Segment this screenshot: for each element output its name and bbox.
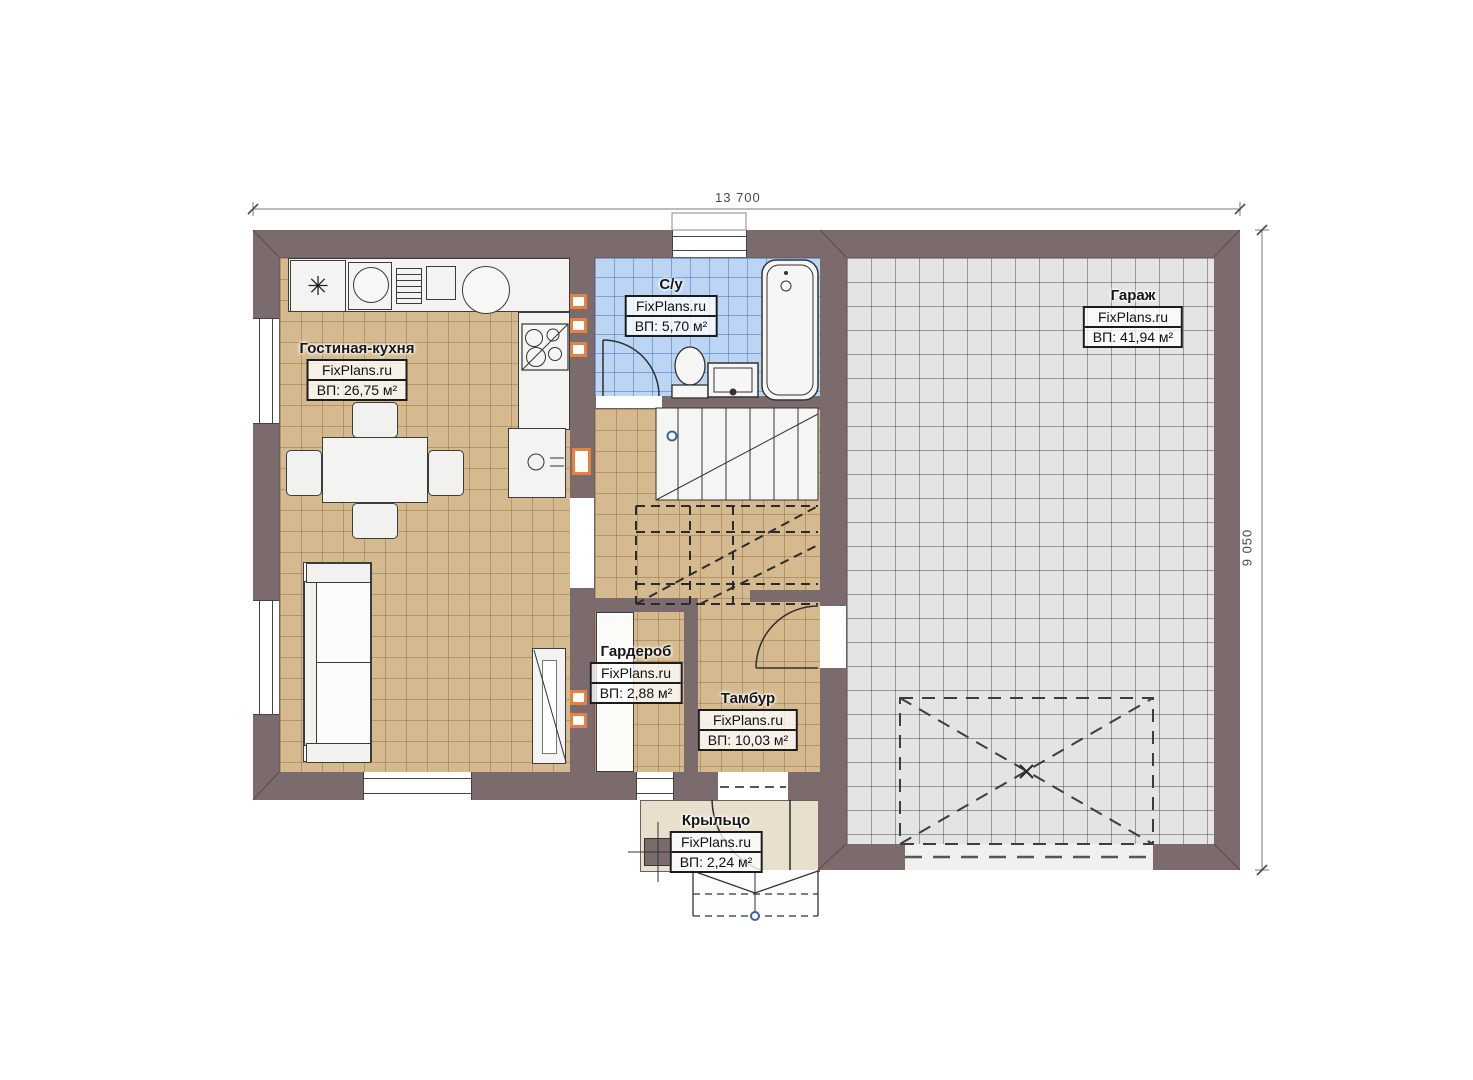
- doorway-bathroom: [596, 396, 662, 408]
- watermark-fixplans: FixPlans.ru: [1085, 308, 1181, 326]
- watermark-fixplans: FixPlans.ru: [672, 833, 761, 851]
- room-name: Гостиная-кухня: [300, 340, 415, 357]
- room-area: ВП: 41,94 м²: [1085, 326, 1181, 346]
- window-wardrobe: [636, 772, 674, 800]
- watermark-fixplans: FixPlans.ru: [627, 297, 716, 315]
- room-area: ВП: 26,75 м²: [309, 379, 405, 399]
- dining-table: [322, 437, 428, 503]
- watermark-fixplans: FixPlans.ru: [592, 664, 681, 682]
- room-label-vestibule: Тамбур FixPlans.ru ВП: 10,03 м²: [698, 690, 798, 751]
- window-living-bottom: [363, 772, 472, 800]
- kitchen-cabinet: [426, 266, 456, 300]
- sofa: [303, 562, 372, 762]
- wall-garage-right: [1214, 257, 1240, 870]
- garage-door-opening: [905, 844, 1153, 870]
- wall-porch-right: [818, 772, 846, 870]
- room-area: ВП: 10,03 м²: [700, 729, 796, 749]
- dimension-width-label: 13 700: [715, 190, 761, 205]
- watermark-fixplans: FixPlans.ru: [700, 711, 796, 729]
- room-name: С/у: [625, 276, 718, 293]
- window-living-left-1: [253, 318, 279, 424]
- entrance-door-opening: [718, 772, 788, 800]
- room-name: Гардероб: [590, 643, 683, 660]
- refrigerator-icon: ✳: [290, 260, 346, 312]
- room-area: ВП: 2,24 м²: [672, 851, 761, 871]
- electrical-panel-icon: [572, 448, 591, 475]
- vanity-unit: [508, 428, 566, 498]
- chair: [352, 402, 398, 438]
- dimension-height-label: 9 050: [1239, 529, 1254, 567]
- room-label-bathroom: С/у FixPlans.ru ВП: 5,70 м²: [625, 276, 718, 337]
- room-label-living: Гостиная-кухня FixPlans.ru ВП: 26,75 м²: [300, 340, 415, 401]
- sofa-armrest: [306, 743, 371, 763]
- vent-box-icon: [570, 690, 587, 705]
- dishwasher-icon: [396, 268, 422, 304]
- room-label-garage: Гараж FixPlans.ru ВП: 41,94 м²: [1083, 287, 1183, 348]
- floor-plan: 13 700 9 050 ✳: [0, 0, 1473, 1080]
- chair: [352, 503, 398, 539]
- vent-box-icon: [570, 342, 587, 357]
- room-name: Крыльцо: [670, 812, 763, 829]
- vent-box-icon: [570, 294, 587, 309]
- vent-box-icon: [570, 713, 587, 728]
- vent-box-icon: [570, 318, 587, 333]
- wall-wardrobe-top: [594, 598, 686, 612]
- room-area: ВП: 2,88 м²: [592, 682, 681, 702]
- wall-garage-left: [820, 257, 846, 844]
- wall-vestibule-stub: [750, 590, 820, 602]
- doorway-living-hall: [570, 498, 594, 588]
- room-name: Тамбур: [698, 690, 798, 707]
- sofa-armrest: [306, 563, 371, 583]
- room-name: Гараж: [1083, 287, 1183, 304]
- room-label-porch: Крыльцо FixPlans.ru ВП: 2,24 м²: [670, 812, 763, 873]
- window-living-left-2: [253, 600, 279, 715]
- porch-post: [644, 838, 672, 866]
- room-label-wardrobe: Гардероб FixPlans.ru ВП: 2,88 м²: [590, 643, 683, 704]
- kitchen-counter-side: [518, 312, 570, 430]
- sofa-cushion: [316, 662, 371, 746]
- room-area: ВП: 5,70 м²: [627, 315, 716, 335]
- window-sill: [672, 213, 746, 230]
- tall-cabinet-inner: [542, 660, 557, 754]
- wall-wardrobe-vestibule: [684, 598, 698, 772]
- sofa-cushion: [316, 581, 371, 664]
- window-bathroom: [672, 230, 747, 257]
- round-bowl-icon: [462, 266, 510, 314]
- watermark-fixplans: FixPlans.ru: [309, 361, 405, 379]
- doorway-vestibule-garage: [820, 606, 846, 668]
- chair: [428, 450, 464, 496]
- chair: [286, 450, 322, 496]
- sink-bowl-icon: [353, 267, 389, 303]
- porch-steps: [693, 870, 818, 920]
